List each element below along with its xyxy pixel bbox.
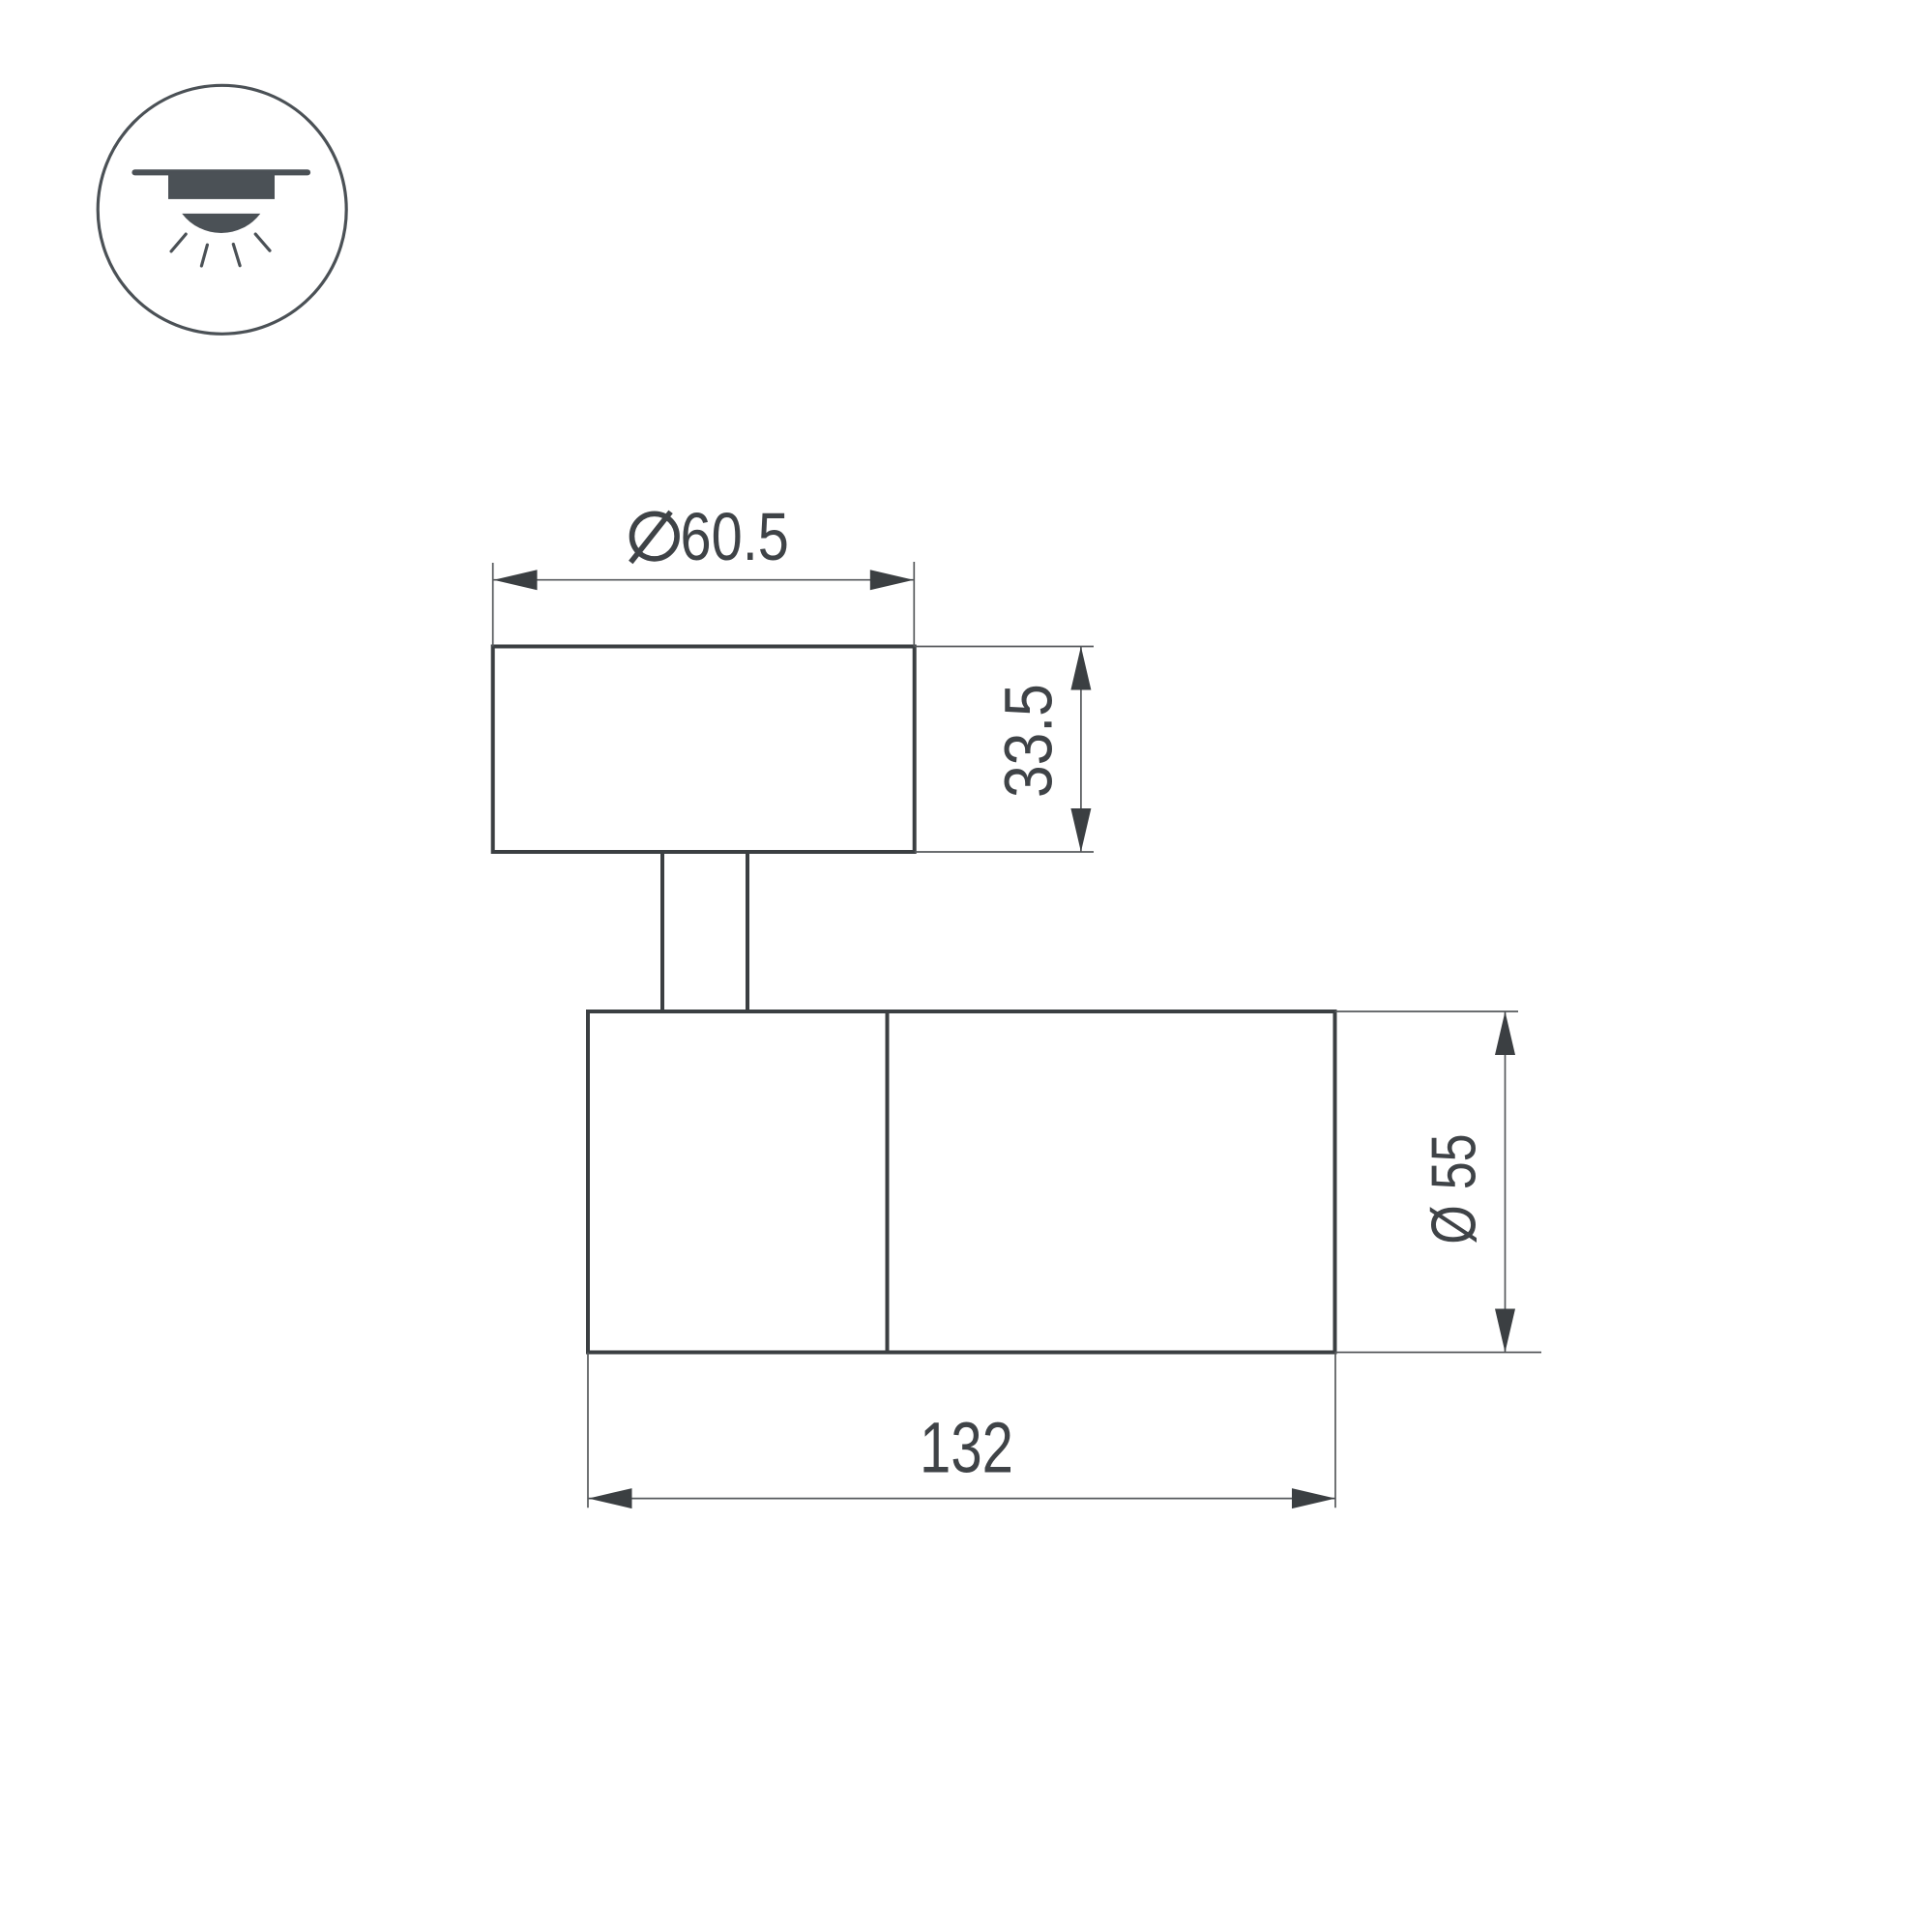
svg-text:132: 132	[920, 1409, 1013, 1488]
svg-text:55: 55	[1420, 1133, 1489, 1189]
svg-text:60.5: 60.5	[681, 499, 789, 575]
svg-text:Ø: Ø	[1420, 1205, 1489, 1244]
svg-text:33.5: 33.5	[990, 684, 1066, 798]
